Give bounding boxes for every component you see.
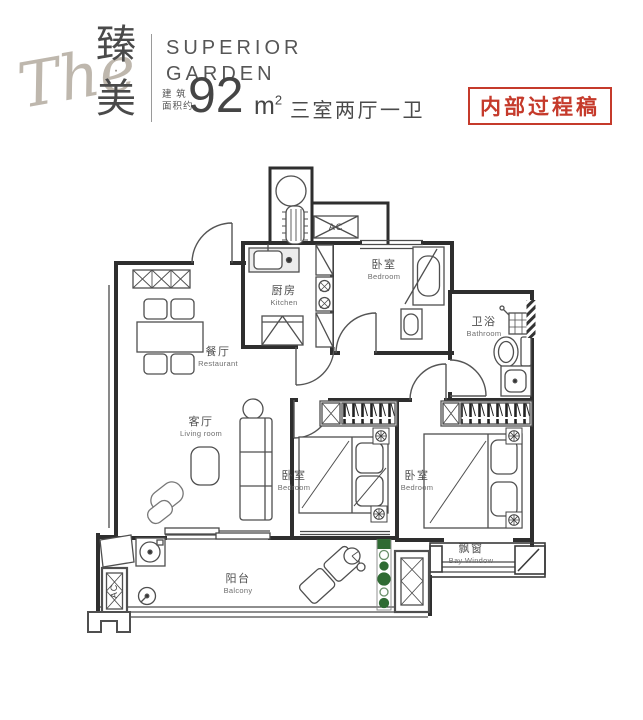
washing-machine-icon: [136, 538, 165, 566]
desk-icon: [401, 309, 422, 339]
bathroom-door-arc: [450, 360, 486, 396]
bedroom-top-label-zh: 卧室: [368, 258, 401, 272]
sofa-icon: [240, 418, 272, 520]
bedroom-middle-label-zh: 卧室: [278, 469, 311, 483]
balcony-plants-icon: [377, 539, 391, 610]
ac-closet-right: [395, 551, 429, 612]
wardrobe-right-icon: [441, 401, 532, 426]
floor-drain-icon: [139, 588, 156, 605]
balcony-railing-window: [100, 607, 428, 617]
floor-plan-drawing: [0, 0, 643, 720]
bay-window-label-en: Bay Window: [449, 556, 494, 566]
bay-window-label-zh: 飘窗: [449, 542, 494, 556]
bedroom-middle-window: [300, 532, 390, 535]
bedroom-top-label-en: Bedroom: [368, 272, 401, 282]
porch-footprint: [88, 612, 130, 632]
bedside-lamp-icon: [371, 506, 387, 522]
shoe-cabinet-icon: [133, 270, 190, 288]
room-label-dining: 餐厅 Restaurant: [198, 345, 238, 369]
bedroom-right-door-arc: [410, 364, 446, 400]
wall-hatch: [527, 300, 536, 338]
room-label-living: 客厅 Living room: [180, 415, 222, 439]
entry-door-arc: [192, 223, 232, 263]
room-label-bay-window: 飘窗 Bay Window: [449, 542, 494, 566]
room-label-bedroom-middle: 卧室 Bedroom: [278, 469, 311, 493]
vent-icon: [276, 176, 306, 206]
dining-label-zh: 餐厅: [198, 345, 238, 359]
fridge-icon: [262, 316, 303, 345]
bathroom-label-zh: 卫浴: [467, 315, 502, 329]
water-heater-icon: [500, 306, 528, 334]
room-label-kitchen: 厨房 Kitchen: [270, 284, 297, 308]
balcony-label-en: Balcony: [224, 586, 253, 596]
kitchen-label-en: Kitchen: [270, 298, 297, 308]
armchair-icon: [145, 478, 187, 526]
living-label-en: Living room: [180, 429, 222, 439]
wardrobe-middle-icon: [320, 401, 397, 426]
stove-icon: [316, 277, 333, 311]
bedside-lamp-icon: [506, 428, 522, 444]
bedroom-right-label-zh: 卧室: [401, 469, 434, 483]
floorplan-page: The 臻 · 美 SUPERIORGARDEN 建 筑面积约 92 m2 三室…: [0, 0, 643, 720]
outdoor-sofa-icon: [298, 545, 365, 605]
bathroom-sink-icon: [501, 366, 531, 396]
coffee-table-icon: [191, 447, 219, 485]
room-label-bedroom-top: 卧室 Bedroom: [368, 258, 401, 282]
structure-column: [100, 535, 134, 567]
ac-label-top: AC: [329, 222, 344, 232]
room-label-bedroom-right: 卧室 Bedroom: [401, 469, 434, 493]
bed-middle-icon: [299, 437, 388, 513]
bedside-lamp-icon: [373, 428, 389, 444]
bed-top-icon: [405, 247, 444, 305]
side-table-icon: [243, 399, 263, 419]
bathroom-label-en: Bathroom: [467, 329, 502, 339]
bedroom-right-label-en: Bedroom: [401, 483, 434, 493]
bedroom-middle-label-en: Bedroom: [278, 483, 311, 493]
room-label-bathroom: 卫浴 Bathroom: [467, 315, 502, 339]
dining-table-icon: [137, 322, 203, 352]
radiator-icon: [282, 206, 308, 244]
living-label-zh: 客厅: [180, 415, 222, 429]
kitchen-door-arc: [296, 347, 334, 385]
kitchen-label-zh: 厨房: [270, 284, 297, 298]
bedroom-top-door-arc: [336, 313, 376, 353]
room-label-balcony: 阳台 Balcony: [224, 572, 253, 596]
kitchen-sink-icon: [249, 244, 299, 272]
bedside-lamp-icon: [506, 512, 522, 528]
balcony-label-zh: 阳台: [224, 572, 253, 586]
dining-label-en: Restaurant: [198, 359, 238, 369]
ac-label-left: AC: [109, 584, 119, 599]
toilet-icon: [494, 337, 531, 367]
